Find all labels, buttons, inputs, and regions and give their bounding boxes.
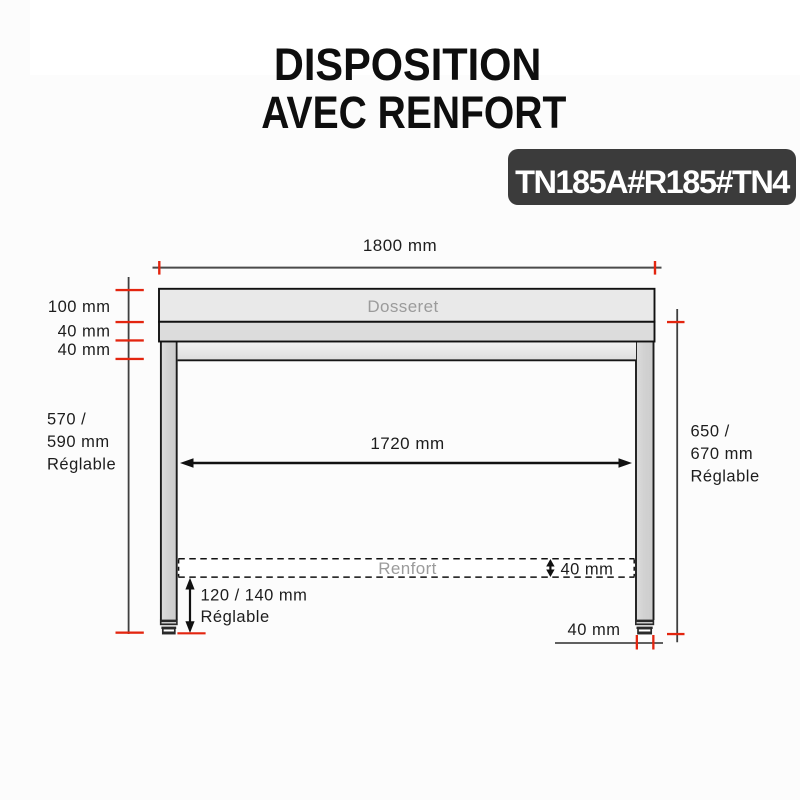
svg-text:40 mm: 40 mm	[58, 323, 111, 341]
svg-text:1800 mm: 1800 mm	[363, 236, 437, 255]
svg-text:120 / 140 mm: 120 / 140 mm	[201, 587, 308, 605]
svg-text:Réglable: Réglable	[201, 608, 270, 626]
svg-text:40 mm: 40 mm	[568, 621, 621, 639]
svg-text:100 mm: 100 mm	[48, 298, 111, 316]
svg-text:570 /: 570 /	[47, 411, 86, 429]
svg-text:590 mm: 590 mm	[47, 433, 110, 451]
svg-text:670 mm: 670 mm	[691, 445, 754, 463]
svg-text:1720 mm: 1720 mm	[370, 434, 444, 453]
svg-text:Réglable: Réglable	[47, 456, 116, 474]
svg-text:Réglable: Réglable	[691, 467, 760, 485]
svg-text:Renfort: Renfort	[378, 559, 437, 578]
svg-text:Dosseret: Dosseret	[367, 297, 438, 316]
svg-text:40 mm: 40 mm	[58, 341, 111, 359]
svg-text:650 /: 650 /	[691, 422, 730, 440]
svg-text:40 mm: 40 mm	[561, 560, 614, 578]
